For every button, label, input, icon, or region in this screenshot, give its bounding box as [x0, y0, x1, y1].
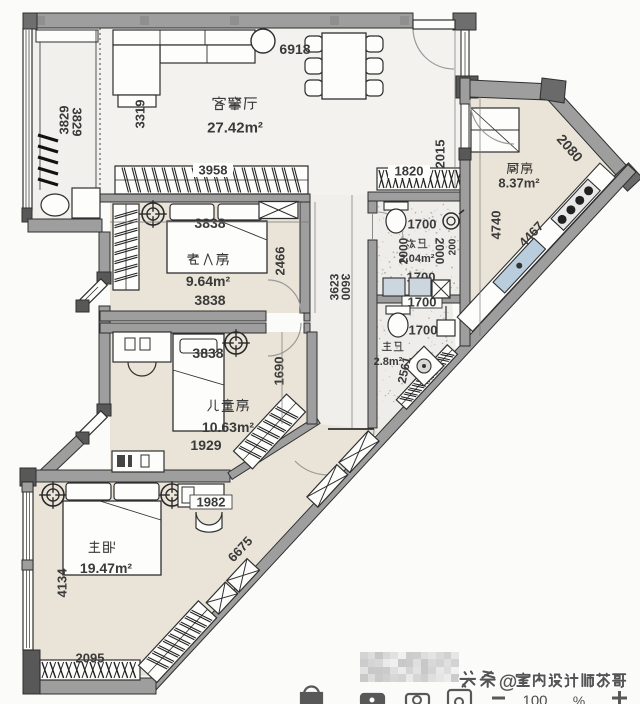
svg-text:1700: 1700 [408, 217, 437, 232]
svg-text:3838: 3838 [192, 345, 223, 361]
svg-text:3600: 3600 [339, 274, 353, 301]
svg-text:3838: 3838 [194, 215, 225, 231]
svg-text:2000: 2000 [433, 238, 447, 265]
svg-text:3958: 3958 [199, 163, 228, 178]
svg-text:10.63m²: 10.63m² [202, 419, 254, 435]
svg-text:4740: 4740 [489, 211, 504, 240]
svg-text:6918: 6918 [279, 41, 310, 57]
svg-text:2.04m²: 2.04m² [400, 253, 435, 265]
svg-text:1982: 1982 [197, 495, 226, 510]
svg-text:4134: 4134 [55, 568, 70, 598]
svg-text:%: % [573, 693, 585, 704]
svg-text:19.47m²: 19.47m² [80, 560, 132, 576]
svg-text:1820: 1820 [395, 164, 424, 179]
svg-text:3838: 3838 [194, 292, 225, 308]
svg-text:100: 100 [522, 692, 547, 704]
svg-text:200: 200 [448, 238, 459, 255]
svg-text:2095: 2095 [76, 651, 105, 666]
svg-text:2466: 2466 [273, 247, 288, 276]
svg-text:@: @ [499, 672, 518, 693]
svg-text:8.37m²: 8.37m² [498, 176, 540, 191]
svg-text:2.8m²: 2.8m² [374, 356, 403, 368]
svg-text:27.42m²: 27.42m² [207, 119, 263, 136]
svg-text:3829: 3829 [69, 108, 84, 137]
svg-text:3319: 3319 [133, 100, 148, 129]
svg-text:9.64m²: 9.64m² [186, 273, 231, 289]
svg-text:1690: 1690 [272, 357, 287, 386]
svg-text:1929: 1929 [190, 437, 221, 453]
svg-text:1700: 1700 [409, 323, 438, 338]
svg-text:2015: 2015 [433, 140, 448, 169]
